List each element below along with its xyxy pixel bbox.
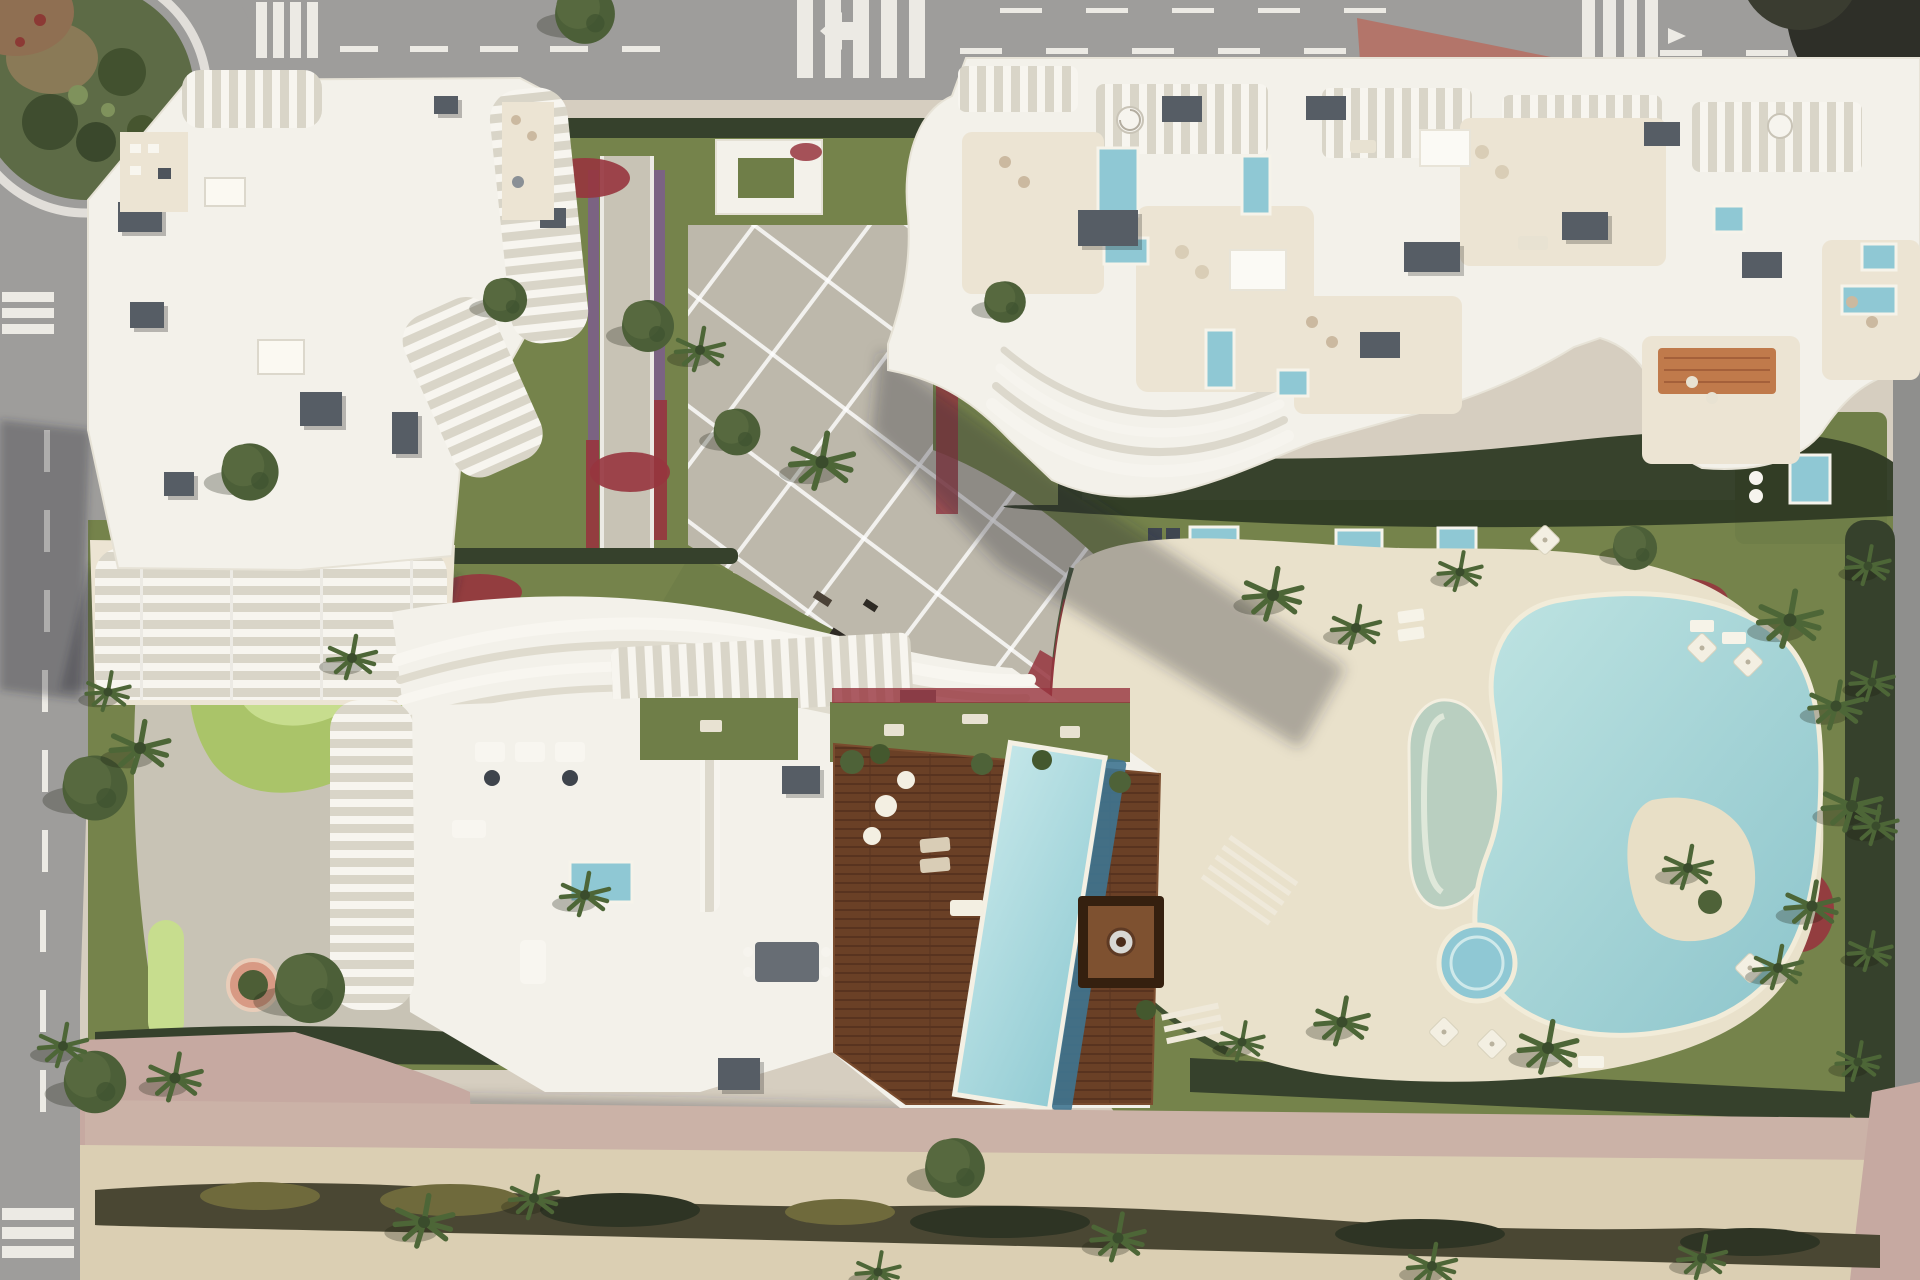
golf-hole-1 bbox=[148, 920, 184, 1040]
south-dining-set bbox=[755, 942, 819, 982]
nw-balcony-louvers-north bbox=[182, 70, 322, 128]
ne-spiral-stair-2 bbox=[1768, 114, 1792, 138]
nw-roof-terrace-east bbox=[502, 102, 554, 220]
south-louver-wing bbox=[330, 700, 414, 1010]
aerial-render-stage: Top-down 3D architectural rendering: thr… bbox=[0, 0, 1920, 1280]
entry-path bbox=[602, 156, 650, 556]
private-garden-pool bbox=[1790, 455, 1830, 503]
aerial-render: Top-down 3D architectural rendering: thr… bbox=[0, 0, 1920, 1280]
